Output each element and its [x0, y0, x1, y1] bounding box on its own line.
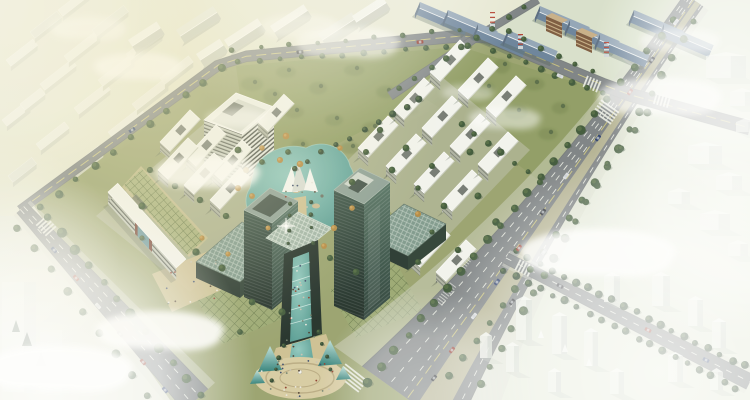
- warm-wash: [0, 0, 750, 400]
- architectural-rendering: [0, 0, 750, 400]
- aerial-masterplan-render: [0, 0, 750, 400]
